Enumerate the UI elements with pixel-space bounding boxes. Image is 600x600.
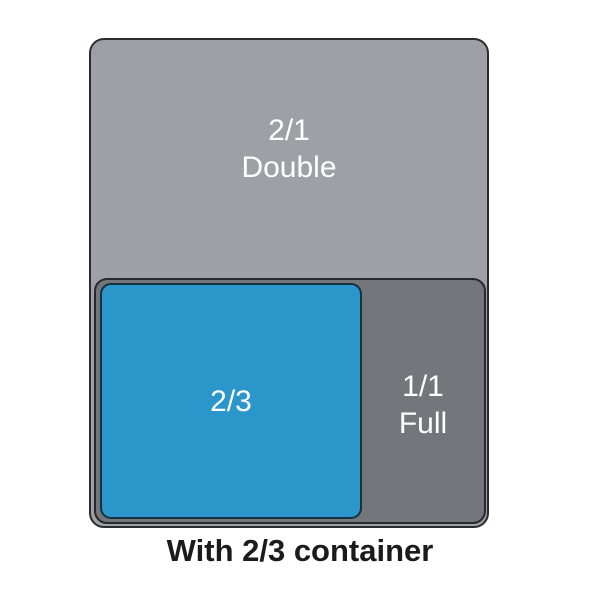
container-2-3: 2/3 — [100, 283, 362, 519]
label-1-1-name: Full — [362, 405, 484, 442]
container-size-diagram: 2/1 Double 2/3 1/1 Full With 2/3 contain… — [0, 0, 600, 600]
label-1-1-full: 1/1 Full — [362, 368, 484, 442]
diagram-caption: With 2/3 container — [0, 533, 600, 569]
label-2-3-size: 2/3 — [210, 383, 252, 420]
label-2-1-name: Double — [91, 149, 487, 186]
label-2-1-size: 2/1 — [91, 112, 487, 149]
label-2-1-double: 2/1 Double — [91, 112, 487, 186]
label-1-1-size: 1/1 — [362, 368, 484, 405]
container-2-1-double: 2/1 Double 2/3 1/1 Full — [89, 38, 489, 528]
container-1-1-full: 2/3 1/1 Full — [94, 278, 486, 524]
